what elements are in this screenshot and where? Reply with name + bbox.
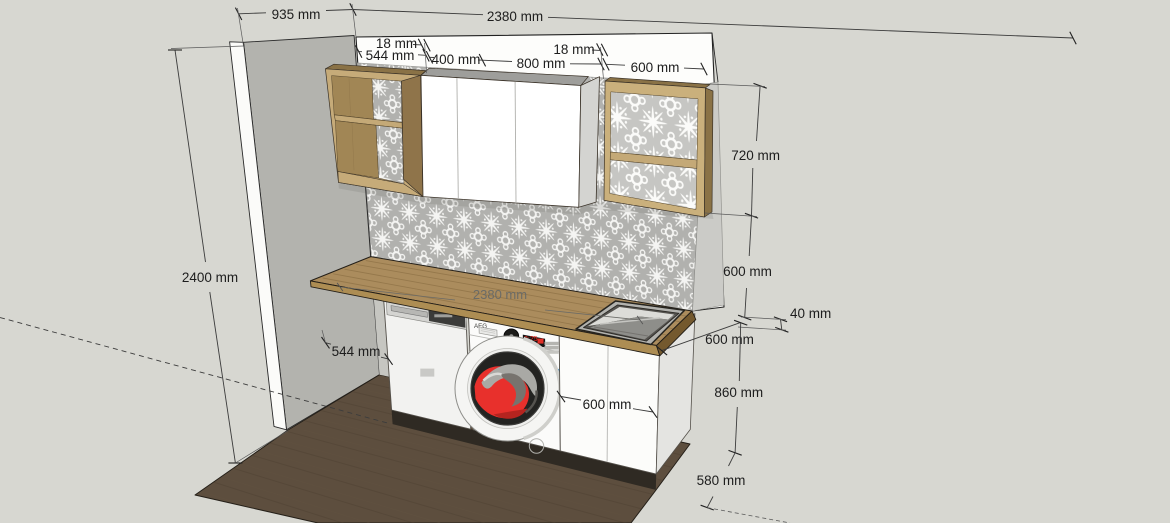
svg-text:580 mm: 580 mm	[697, 473, 746, 488]
svg-text:600 mm: 600 mm	[723, 264, 772, 279]
svg-text:40 mm: 40 mm	[790, 306, 831, 321]
svg-text:2400 mm: 2400 mm	[182, 270, 238, 285]
svg-text:544 mm: 544 mm	[332, 344, 381, 359]
svg-text:544 mm: 544 mm	[366, 48, 415, 63]
svg-text:2380 mm: 2380 mm	[487, 9, 543, 24]
svg-text:600 mm: 600 mm	[583, 397, 632, 412]
svg-text:600 mm: 600 mm	[705, 332, 754, 347]
svg-text:720 mm: 720 mm	[731, 148, 780, 163]
svg-text:400 mm: 400 mm	[432, 52, 481, 67]
svg-text:2380 mm: 2380 mm	[473, 287, 527, 302]
svg-text:600 mm: 600 mm	[631, 60, 680, 75]
svg-text:18 mm: 18 mm	[553, 42, 594, 57]
svg-text:800 mm: 800 mm	[517, 56, 566, 71]
svg-text:860 mm: 860 mm	[714, 385, 763, 400]
svg-text:935 mm: 935 mm	[272, 7, 321, 22]
